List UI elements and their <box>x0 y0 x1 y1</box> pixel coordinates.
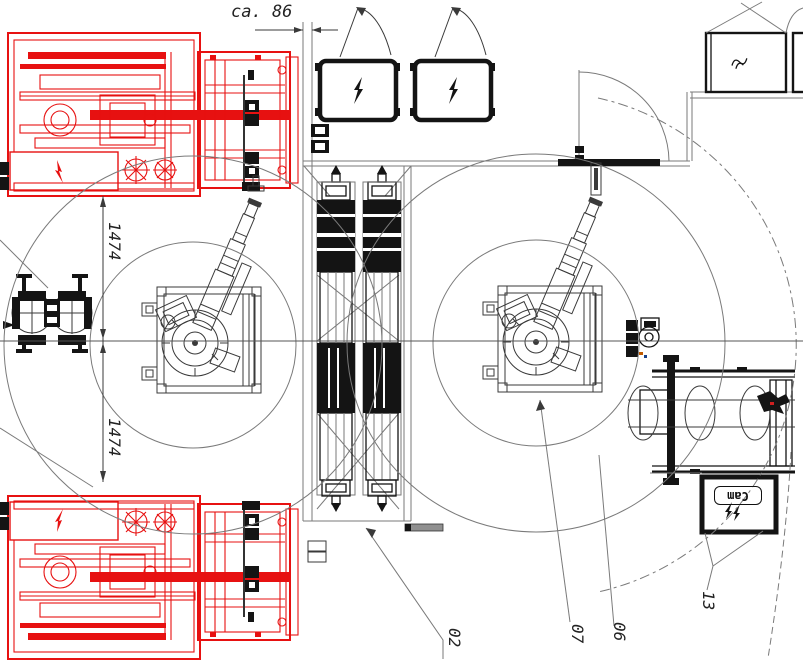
dimension-label-reach-upper: 1474 <box>106 222 122 261</box>
dimension-label-top-gap: ca. 86 <box>231 4 292 21</box>
callout-label-06: 06 <box>611 622 627 641</box>
mount-bracket <box>311 124 329 153</box>
dimension-gap-top <box>255 27 338 33</box>
callout-leaders <box>366 400 614 659</box>
part-fixture <box>626 318 659 358</box>
utility-box <box>706 2 803 92</box>
injection-molding-machine-top <box>0 33 298 196</box>
conveyor-lane <box>317 165 355 512</box>
camera-label: Cam <box>714 486 762 505</box>
cad-canvas: ca. 86 1474 1474 02 07 06 13 Cam <box>0 0 803 660</box>
six-axis-robot-right <box>483 195 617 392</box>
electrical-box <box>315 61 400 120</box>
wave-icon <box>735 63 744 69</box>
callout-label-13: 13 <box>700 591 716 610</box>
callout-label-07: 07 <box>569 624 585 643</box>
lifting-arcs <box>340 7 486 57</box>
six-axis-robot <box>142 196 276 393</box>
roller-table <box>628 355 795 485</box>
robot-wall-mount-right <box>591 163 601 195</box>
callout-label-02: 02 <box>446 628 462 647</box>
floorplan-drawing <box>0 0 803 660</box>
dual-clamp-fixture <box>0 240 92 353</box>
wave-icon <box>731 58 748 66</box>
pallet-stand <box>308 524 443 562</box>
dimension-label-reach-lower: 1474 <box>106 418 122 457</box>
injection-molding-machine-bottom <box>0 496 298 659</box>
